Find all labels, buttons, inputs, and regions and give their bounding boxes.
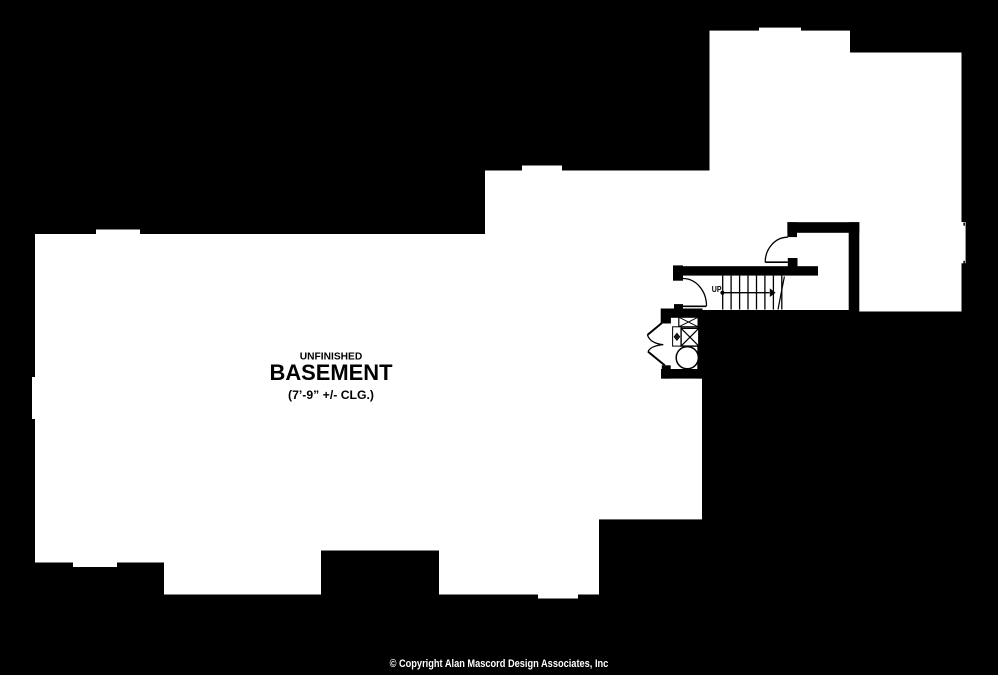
- svg-text:© Copyright Alan Mascord Desig: © Copyright Alan Mascord Design Associat…: [390, 658, 609, 670]
- svg-text:(7’-9” +/- CLG.): (7’-9” +/- CLG.): [288, 388, 374, 402]
- svg-text:UP: UP: [712, 284, 722, 294]
- svg-text:BASEMENT: BASEMENT: [270, 360, 394, 385]
